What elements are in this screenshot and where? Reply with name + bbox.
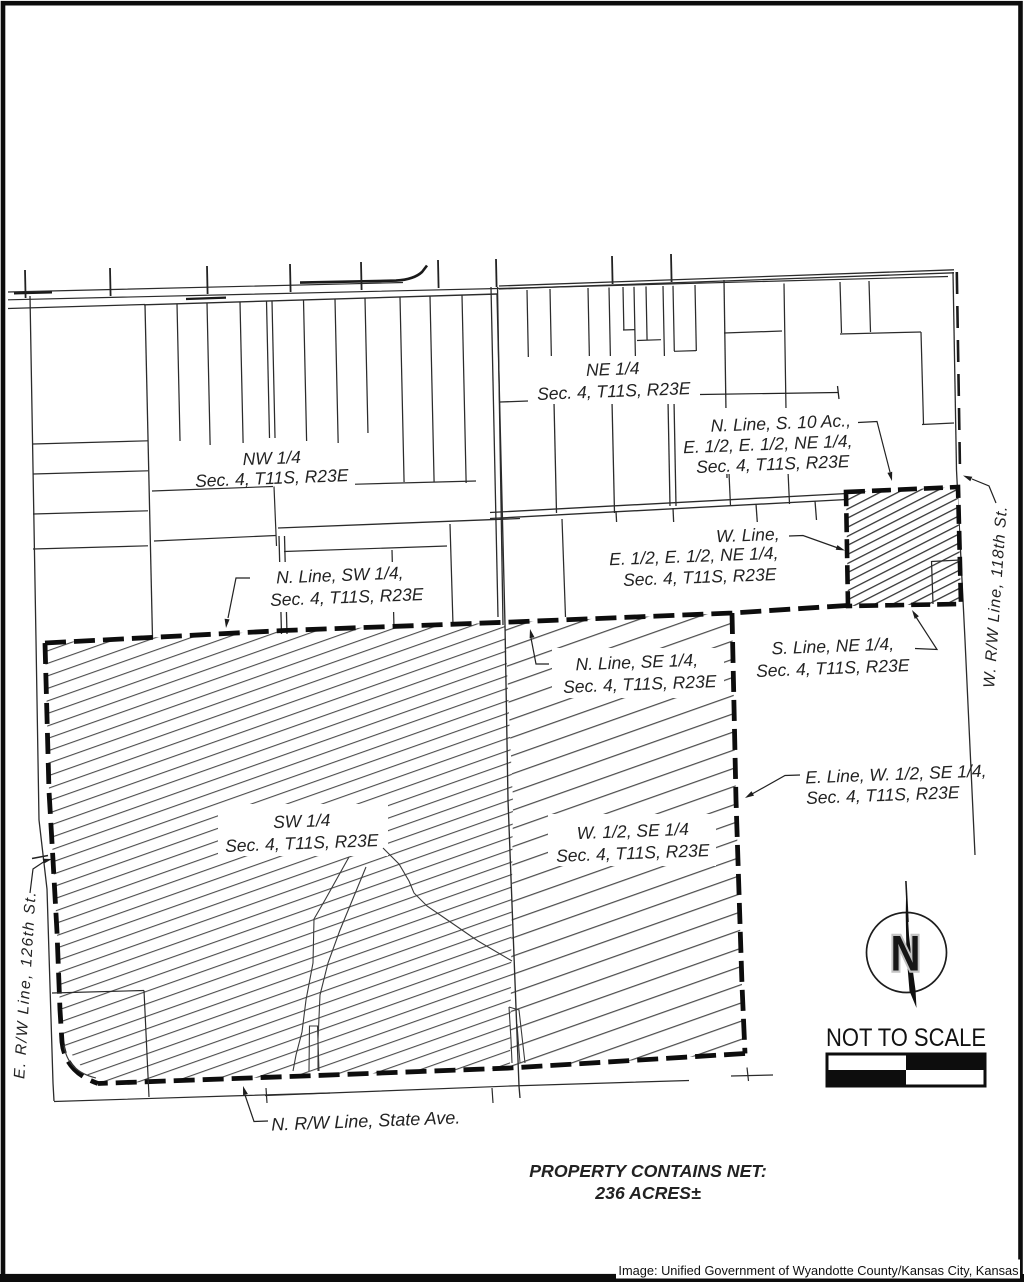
svg-text:NW 1/4: NW 1/4 bbox=[242, 447, 301, 469]
svg-text:NE 1/4: NE 1/4 bbox=[586, 358, 640, 380]
svg-text:SW 1/4: SW 1/4 bbox=[273, 810, 331, 832]
svg-text:NOT TO SCALE: NOT TO SCALE bbox=[826, 1024, 986, 1052]
svg-text:N: N bbox=[891, 926, 921, 982]
svg-text:PROPERTY CONTAINS NET:: PROPERTY CONTAINS NET: bbox=[529, 1161, 767, 1181]
svg-text:Image: Unified Government of W: Image: Unified Government of Wyandotte C… bbox=[618, 1263, 1018, 1278]
svg-text:236 ACRES±: 236 ACRES± bbox=[594, 1183, 701, 1203]
